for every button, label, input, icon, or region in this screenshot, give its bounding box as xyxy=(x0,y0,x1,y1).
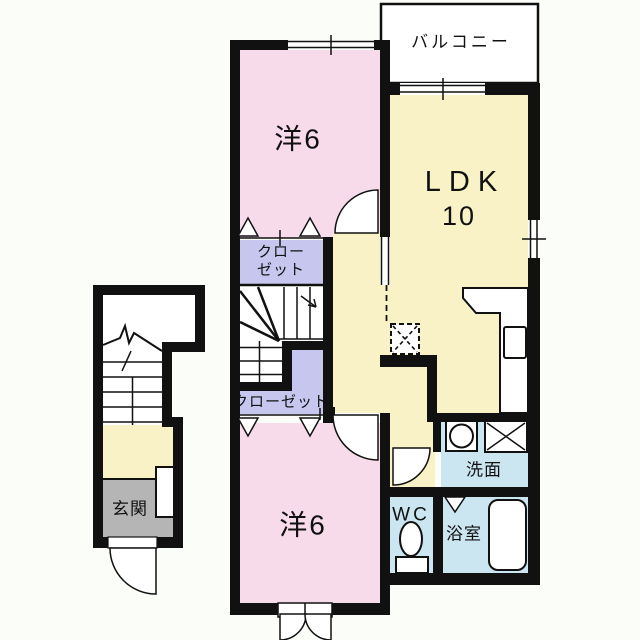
label-balcony: バルコニー xyxy=(411,33,511,52)
balcony-block: バルコニー xyxy=(381,4,538,83)
label-ldk-size: 10 xyxy=(442,201,476,231)
label-washroom: 洗面 xyxy=(466,461,502,480)
closet-lower-area-a xyxy=(292,350,324,391)
washing-machine-pan xyxy=(485,421,527,452)
kitchen-sink xyxy=(504,327,526,358)
label-room-upper: 洋6 xyxy=(274,124,322,155)
refrigerator-space xyxy=(391,324,419,354)
hallway-area xyxy=(333,233,387,367)
floor-plan-canvas: 玄関 バルコニー xyxy=(0,0,640,640)
label-closet-upper-line2: ゼット xyxy=(257,262,305,279)
toilet-bowl xyxy=(400,522,422,556)
toilet-tank xyxy=(396,557,428,573)
label-ldk: LDK xyxy=(425,166,505,198)
label-entrance: 玄関 xyxy=(112,500,148,519)
label-closet-lower: クローゼット xyxy=(233,394,329,411)
shoe-cabinet xyxy=(156,467,174,517)
bathtub xyxy=(489,500,526,570)
label-room-lower: 洋6 xyxy=(279,510,327,541)
floor-plan: 玄関 バルコニー xyxy=(0,0,640,640)
entrance-door-opening xyxy=(108,537,157,548)
sliding-opening-hall-ldk xyxy=(380,237,390,285)
label-wc: WC xyxy=(392,505,430,526)
hallway-lower-area xyxy=(333,367,437,413)
washstand-basin xyxy=(450,425,473,448)
label-bathroom: 浴室 xyxy=(446,525,482,544)
label-closet-upper-line1: クロー xyxy=(257,244,305,261)
